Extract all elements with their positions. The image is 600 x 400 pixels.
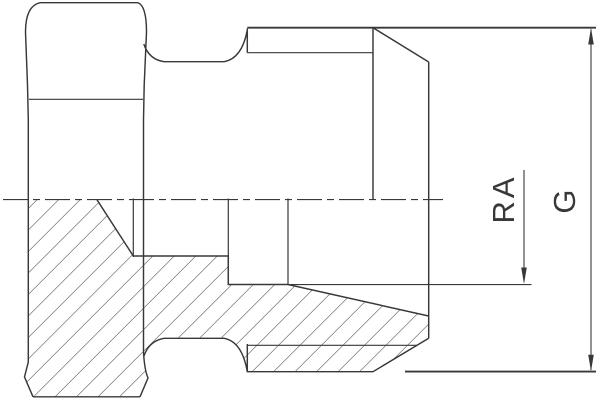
end-chamfer-top [373,28,429,62]
drawing-canvas: RA G [0,0,600,400]
fitting-section-drawing: RA G [0,0,600,400]
g-arrowhead-bottom [588,355,594,372]
dimension-g: G [547,28,594,371]
section-hatch-region [25,200,429,397]
ra-label: RA [486,174,521,223]
dimension-ra: RA [288,170,532,285]
g-arrowhead-top [588,28,594,45]
neck-groove-top [144,30,248,62]
g-label: G [547,186,582,213]
ra-arrowhead [521,268,527,285]
